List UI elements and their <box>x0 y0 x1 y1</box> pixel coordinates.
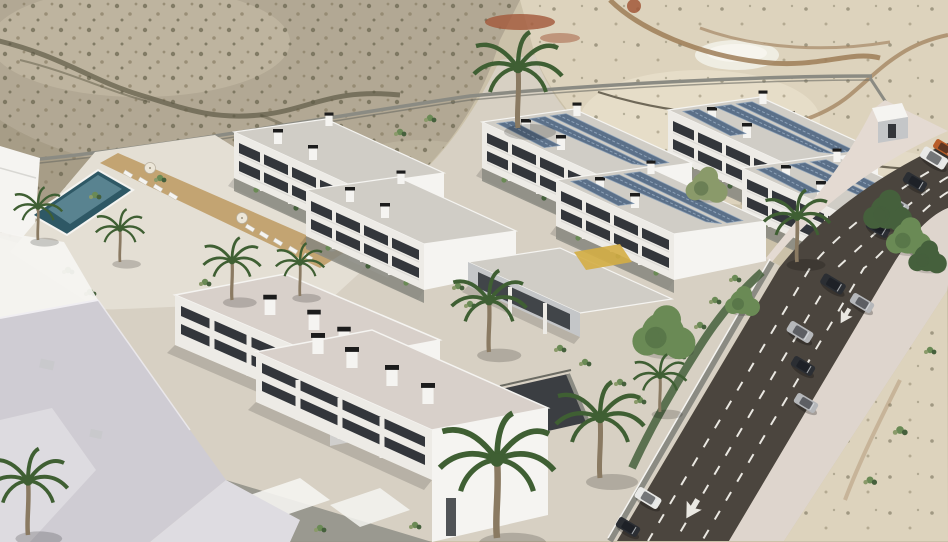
red-soil-patch <box>485 14 555 30</box>
aerial-render-svg <box>0 0 948 542</box>
aerial-render-image <box>0 0 948 542</box>
parasol <box>145 163 156 174</box>
parasol <box>237 213 248 224</box>
